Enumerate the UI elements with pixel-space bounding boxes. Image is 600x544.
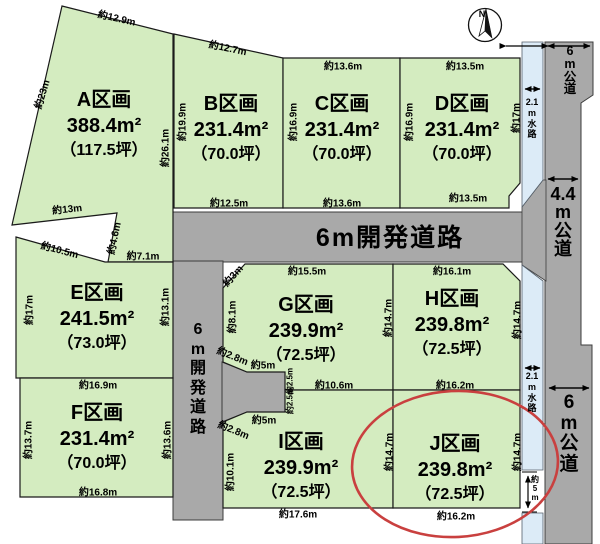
plot-a-label: A区画 388.4m² （117.5坪）: [60, 87, 147, 161]
waterway-top-label: 2.1 m 水 路: [526, 97, 539, 140]
plot-a-tsubo: （117.5坪）: [60, 140, 147, 161]
plot-a-area: 388.4m²: [60, 113, 147, 139]
plot-d-label: D区画 231.4m² （70.0坪）: [422, 91, 501, 165]
dim-c-top: 約13.6m: [324, 58, 362, 73]
dim-h-top: 約16.1m: [433, 263, 471, 278]
dim-a-right: 約26.1m: [157, 129, 172, 167]
dim-g-step: 約5m: [251, 357, 275, 372]
plot-d-name: D区画: [422, 91, 501, 117]
dev-road-vertical-label: 6 m 開 発 道 路: [190, 320, 206, 437]
dim-f-left: 約13.7m: [20, 421, 35, 459]
dim-d-left: 約16.9m: [401, 103, 416, 141]
waterway-bottom-segment: [522, 513, 543, 544]
dim-h-bottom: 約16.2m: [436, 377, 474, 392]
dim-b-bottom: 約12.5m: [210, 195, 248, 210]
plot-g-area: 239.9m²: [266, 318, 345, 344]
dim-f-right: 約13.6m: [159, 421, 174, 459]
dim-a-bottom: 約13m: [51, 199, 82, 217]
plot-f-tsubo: （70.0坪）: [57, 453, 136, 474]
public-road-mid-label: 4.4 m 公 道: [550, 185, 575, 258]
plot-c-area: 231.4m²: [302, 117, 381, 143]
plot-e-tsubo: （73.0坪）: [57, 333, 136, 354]
plot-d-tsubo: （70.0坪）: [422, 144, 501, 165]
public-road-top-label: 6 m 公 道: [564, 45, 577, 96]
dim-j-right: 約14.7m: [509, 433, 524, 471]
plot-b-label: B区画 231.4m² （70.0坪）: [191, 91, 270, 165]
dim-c-left: 約16.9m: [285, 103, 300, 141]
plot-c-name: C区画: [302, 91, 381, 117]
dim-g-top: 約15.5m: [288, 263, 326, 278]
plot-h-name: H区画: [412, 286, 491, 312]
plot-a-name: A区画: [60, 87, 147, 113]
dim-c-bottom: 約13.6m: [323, 195, 361, 210]
land-plot-map: N A区画 388.4m² （117.5坪） B区画 231.4m² （70.0…: [0, 0, 600, 544]
dim-d-bottom: 約13.5m: [449, 190, 487, 205]
dim-d-right: 約17m: [508, 103, 523, 133]
plot-i-name: I区画: [261, 429, 340, 455]
dim-g-bottom: 約10.6m: [315, 377, 353, 392]
plot-g-tsubo: （72.5坪）: [266, 345, 345, 366]
dim-g-left: 約8.1m: [224, 301, 239, 334]
plot-c-label: C区画 231.4m² （70.0坪）: [302, 91, 381, 165]
dim-d-top: 約13.5m: [446, 58, 484, 73]
plot-h-label: H区画 239.8m² （72.5坪）: [412, 286, 491, 360]
compass-north-label: N: [479, 9, 486, 19]
dim-f-bottom: 約16.8m: [79, 484, 117, 499]
public-road-bottom-label: 6 m 公 道: [559, 393, 578, 475]
plot-h-area: 239.8m²: [412, 312, 491, 338]
plot-j-tsubo: （72.5坪）: [415, 484, 494, 505]
dim-h-right: 約14.7m: [509, 301, 524, 339]
dim-i-right: 約14.7m: [381, 433, 396, 471]
plot-e-area: 241.5m²: [57, 306, 136, 332]
plot-i-label: I区画 239.9m² （72.5坪）: [261, 429, 340, 503]
plot-g-label: G区画 239.9m² （72.5坪）: [266, 292, 345, 366]
plot-h-tsubo: （72.5坪）: [412, 339, 491, 360]
waterway-bottom-label: 2.1 m 水 路: [526, 371, 539, 414]
plot-g-name: G区画: [266, 292, 345, 318]
plot-f-name: F区画: [57, 400, 136, 426]
plot-c-tsubo: （70.0坪）: [302, 144, 381, 165]
plot-b-tsubo: （70.0坪）: [191, 144, 270, 165]
dim-e-left: 約17m: [21, 295, 36, 325]
dim-g-right: 約14.7m: [380, 299, 395, 337]
plot-j-label: J区画 239.8m² （72.5坪）: [415, 431, 494, 505]
dim-i-step: 約5m: [252, 412, 276, 427]
plot-b-area: 231.4m²: [191, 117, 270, 143]
dim-i-bottom: 約17.6m: [279, 506, 317, 521]
dim-e-right: 約13.1m: [157, 288, 172, 326]
dim-b-left: 約19.9m: [174, 103, 189, 141]
plot-d-area: 231.4m²: [422, 117, 501, 143]
plot-j-area: 239.8m²: [415, 457, 494, 483]
dim-f-top: 約16.9m: [79, 377, 117, 392]
plot-i-area: 239.9m²: [261, 455, 340, 481]
dim-j-bottom: 約16.2m: [437, 508, 475, 523]
plot-e-name: E区画: [57, 280, 136, 306]
waterway-gap-label: 約 5 m: [531, 475, 539, 503]
plot-e-label: E区画 241.5m² （73.0坪）: [57, 280, 136, 354]
dim-i-left: 約10.1m: [222, 453, 237, 491]
plot-f-area: 231.4m²: [57, 426, 136, 452]
dev-road-horizontal-label: 6m開発道路: [316, 218, 464, 254]
plot-j-name: J区画: [415, 431, 494, 457]
dim-i-step2: 約2.5m: [285, 388, 296, 414]
dim-e-top: 約7.1m: [127, 248, 160, 263]
plot-b-name: B区画: [191, 91, 270, 117]
plot-f-label: F区画 231.4m² （70.0坪）: [57, 400, 136, 474]
plot-i-tsubo: （72.5坪）: [261, 482, 340, 503]
